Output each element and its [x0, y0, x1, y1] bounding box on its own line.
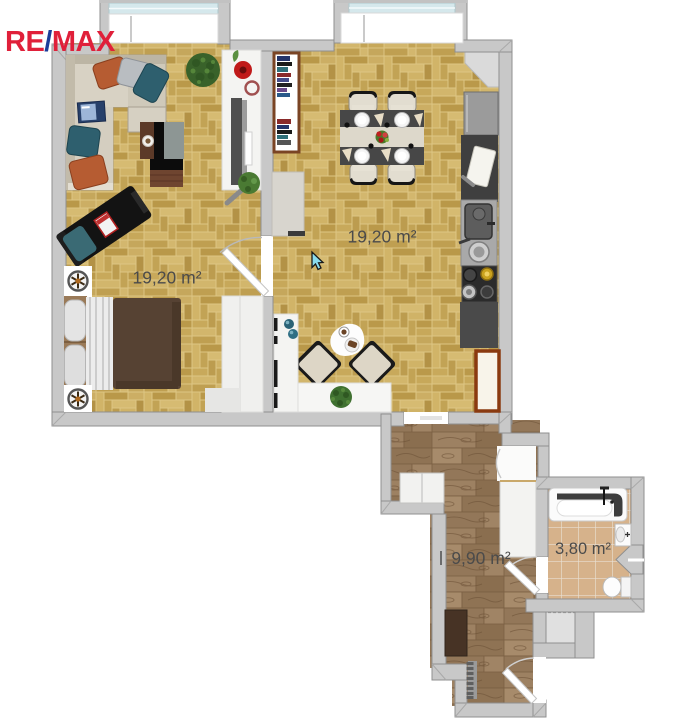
svg-text:3,80 m²: 3,80 m²: [555, 540, 611, 558]
svg-text:19,20 m²: 19,20 m²: [132, 268, 201, 288]
svg-text:19,20 m²: 19,20 m²: [347, 227, 416, 247]
svg-text:9,90 m²: 9,90 m²: [451, 548, 510, 568]
svg-text:RE/MAX: RE/MAX: [5, 26, 116, 58]
